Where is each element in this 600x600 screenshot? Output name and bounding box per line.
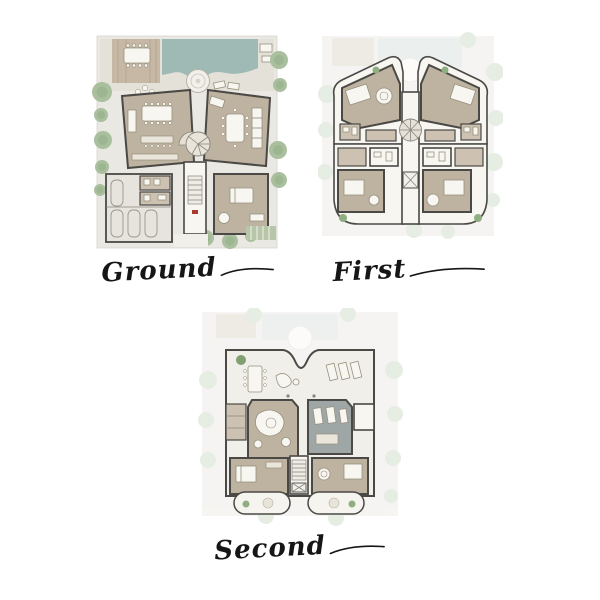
stair-icon [292,460,306,480]
planter-icon [474,214,482,222]
label-flourish [328,540,389,557]
dressing-room [455,148,483,166]
sun-lounger-icon [326,361,362,380]
store-room [226,404,246,440]
entry-marker [192,210,198,214]
garage [106,174,172,242]
bed-icon [344,180,364,195]
pantry [354,404,374,430]
dining-kitchen-wing [122,90,194,168]
hedge [246,226,276,240]
gym [308,400,352,454]
first-floor-drawing [318,32,503,250]
curvy-sofa-icon [255,410,284,436]
ground-floor-label: Ground [87,249,290,290]
label-flourish [218,262,277,279]
floor-plans-sheet: Ground First Second [0,0,600,600]
circulation-core [290,456,308,494]
sun-deck [112,39,160,83]
sofa-icon [128,110,136,132]
round-chair-icon [427,194,439,206]
planter-icon [236,355,246,365]
family-lounge [248,400,298,458]
dressing-room [425,130,455,141]
terrace-dining-table-icon [248,366,262,392]
chair-icon [219,213,230,224]
ground-floor-drawing [88,30,290,252]
first-floor-label: First [317,249,503,289]
bedroom-right [312,458,368,494]
desk-icon [250,214,264,221]
central-corridor [402,92,419,224]
planter-icon [373,67,380,74]
planter-icon [349,501,356,508]
entry-corridor [184,162,206,234]
second-floor-plan [196,308,406,528]
majlis-table-icon [226,114,244,142]
kitchen-counter-icon [132,154,178,160]
dressing-room [366,130,396,141]
dining-table-icon [142,106,172,121]
balcony-left [234,492,290,514]
round-chair-icon [318,468,330,480]
ground-floor-label-text: Ground [101,253,218,289]
planter-icon [339,214,347,222]
planter-icon [243,501,250,508]
bedroom-left [230,458,288,494]
outdoor-dining-table-icon [124,48,150,63]
guest-suite [214,174,268,234]
second-floor-drawing [196,308,406,528]
ground-floor-plan [88,30,290,252]
first-floor-plan [318,32,503,250]
planter-icon [442,67,449,74]
round-sofa-icon [376,88,392,104]
first-floor-label-text: First [332,254,407,288]
driveway [174,234,208,247]
rug-icon [263,498,273,508]
rug-icon [329,498,339,508]
majlis-wing [204,90,270,166]
bed-icon [344,464,362,479]
kitchen-island-icon [141,136,173,143]
second-floor-label: Second [195,527,406,568]
second-floor-label-text: Second [214,531,327,567]
bed-icon [444,180,464,195]
label-flourish [408,263,489,281]
dresser-icon [266,462,282,468]
dressing-room [338,148,366,166]
